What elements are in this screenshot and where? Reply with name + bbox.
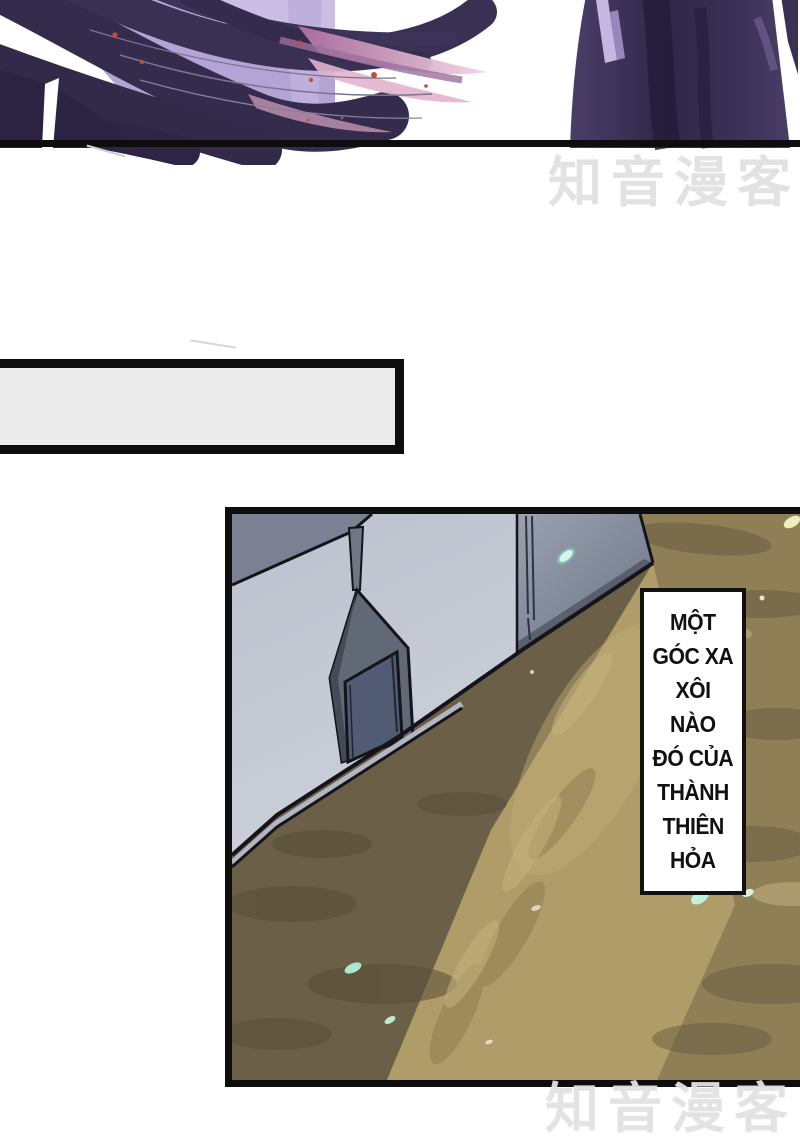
panel-divider-bar <box>0 140 800 147</box>
narration-line: MỘT <box>670 605 716 639</box>
comic-page: 知音漫客 <box>0 0 800 1148</box>
empty-caption-box <box>0 359 404 454</box>
narration-line: GÓC XA <box>653 639 734 673</box>
narration-line: XÔI <box>675 673 710 707</box>
stray-hair-strand <box>190 339 236 348</box>
narration-line: THIÊN <box>662 809 723 843</box>
top-art-panel <box>0 0 800 165</box>
narration-line: THÀNH <box>657 775 729 809</box>
narration-line: ĐÓ CỦA <box>653 741 734 775</box>
character-figure <box>570 0 800 148</box>
hair-artwork <box>0 0 487 152</box>
petal <box>530 670 534 674</box>
watermark-top: 知音漫客 <box>548 156 800 210</box>
petal <box>760 596 765 601</box>
narration-line: NÀO <box>670 707 716 741</box>
narration-line: HỎA <box>670 843 716 877</box>
narration-box: MỘT GÓC XA XÔI NÀO ĐÓ CỦA THÀNH THIÊN HỎ… <box>640 588 746 895</box>
watermark-bottom: 知音漫客 <box>545 1082 797 1136</box>
